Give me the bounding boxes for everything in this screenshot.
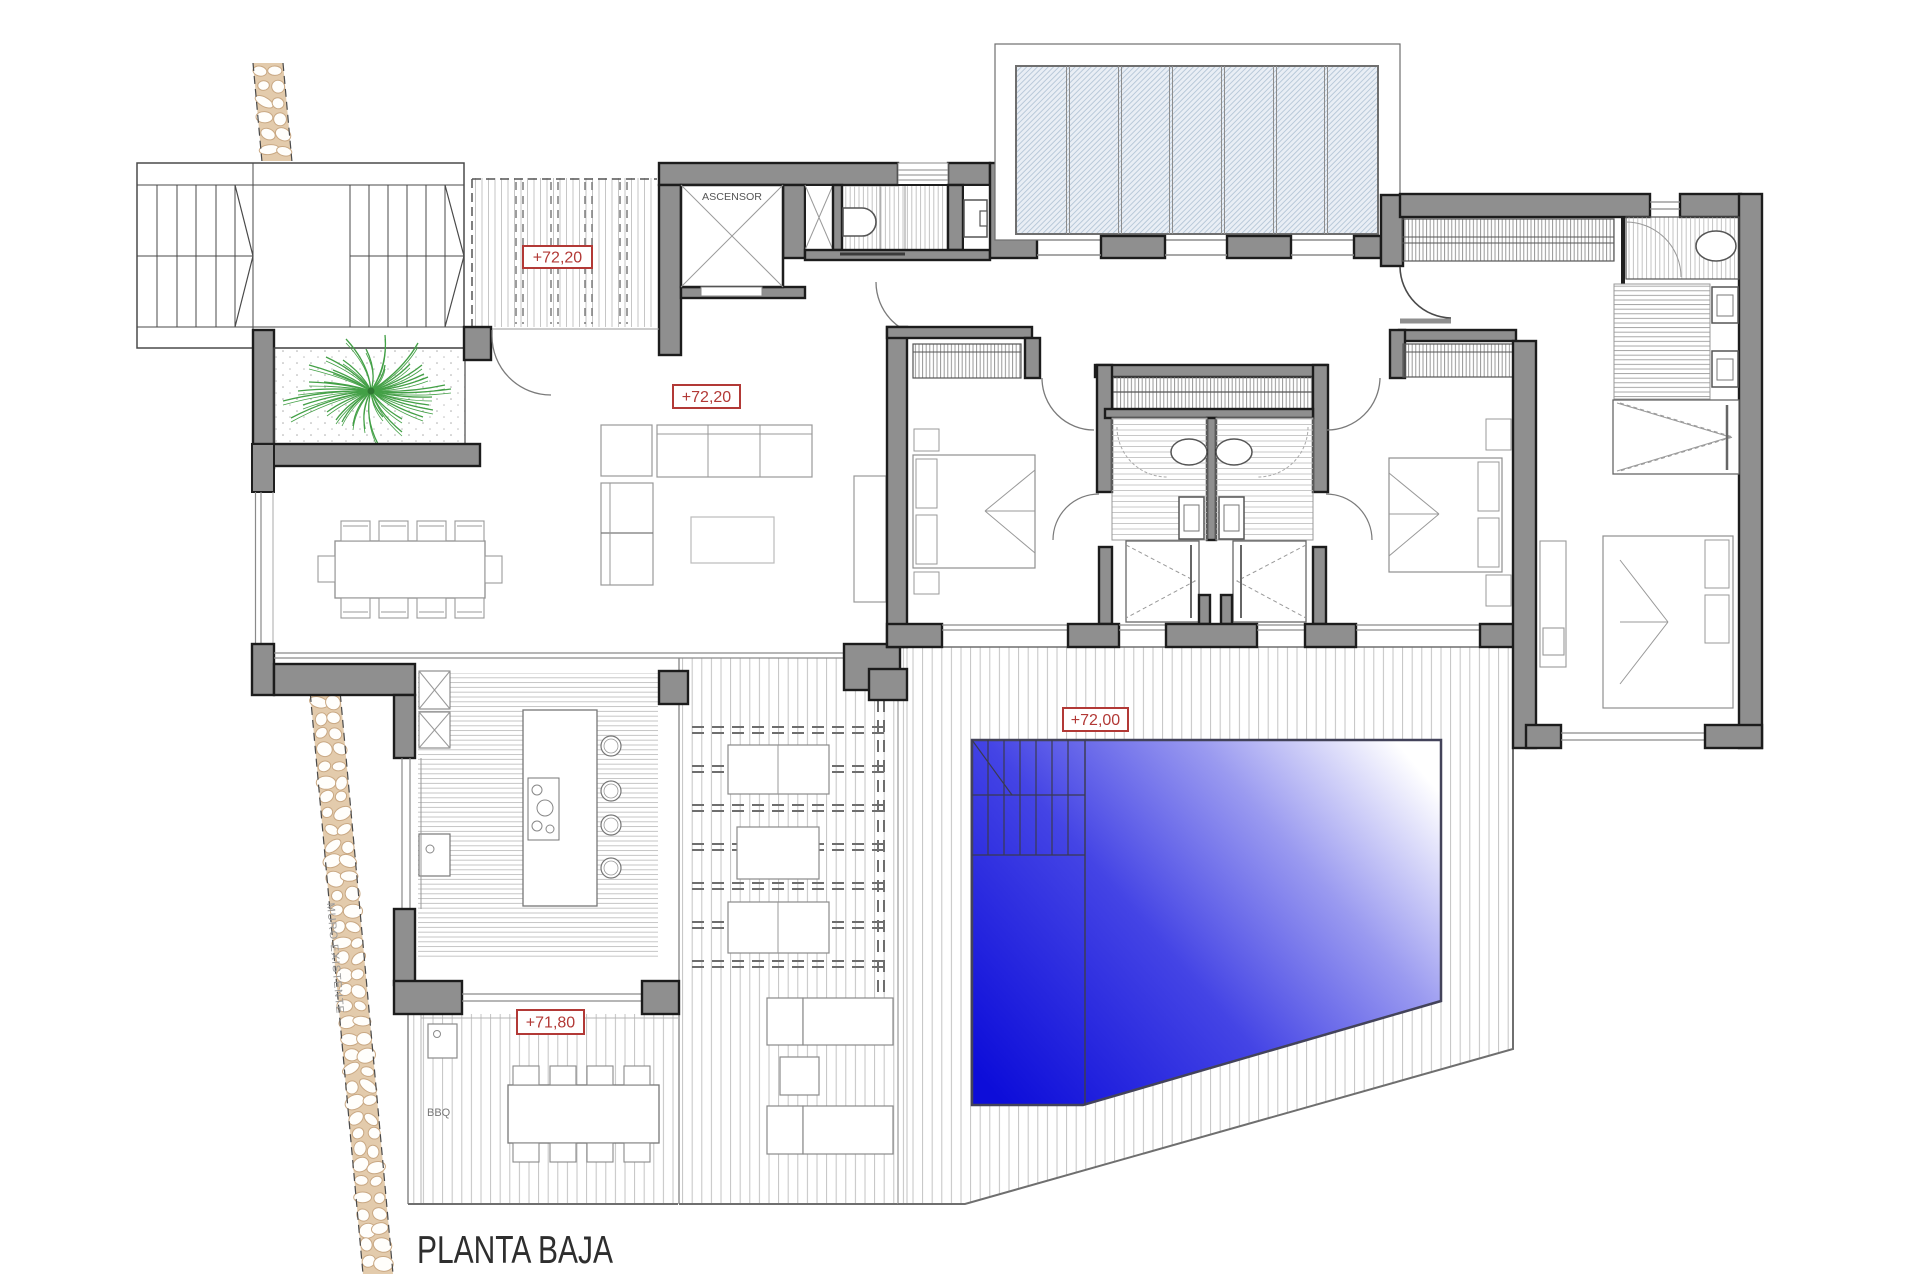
svg-text:ASCENSOR: ASCENSOR — [702, 191, 762, 203]
svg-text:BBQ: BBQ — [427, 1107, 451, 1119]
svg-text:PLANTA BAJA: PLANTA BAJA — [417, 1229, 613, 1272]
svg-text:+72,20: +72,20 — [682, 389, 731, 406]
svg-text:+72,20: +72,20 — [533, 250, 582, 267]
svg-text:+71,80: +71,80 — [526, 1015, 575, 1032]
svg-text:+72,00: +72,00 — [1071, 712, 1120, 729]
